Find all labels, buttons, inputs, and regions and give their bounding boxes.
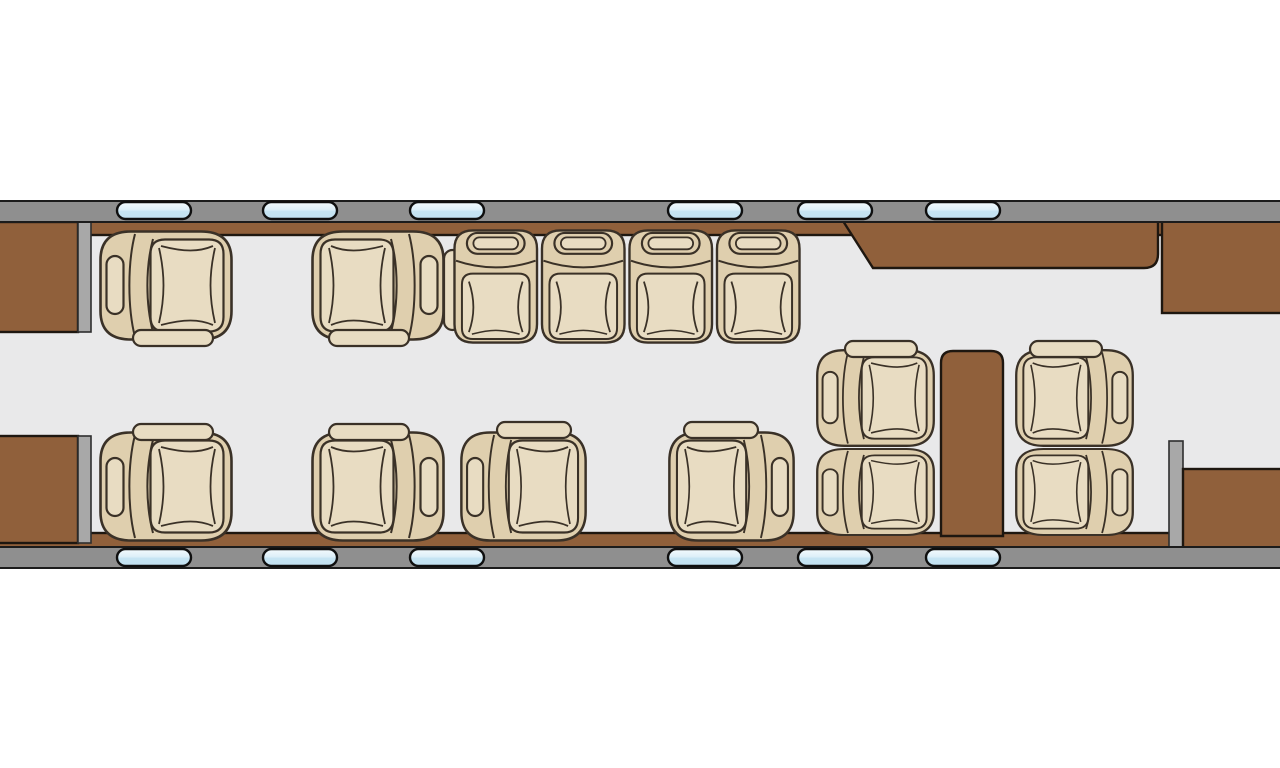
window-row-top-window-5 <box>798 202 872 219</box>
club-seat-3-armrest <box>133 424 213 440</box>
club-seat-4-armrest <box>329 424 409 440</box>
club-seat-3 <box>101 433 232 541</box>
club-seat-2-armrest <box>329 330 409 346</box>
club-seat-5 <box>461 433 585 541</box>
window-row-top-window-6 <box>926 202 1000 219</box>
window-row-bottom-window-1 <box>117 549 191 566</box>
divan-seat-1 <box>454 230 537 342</box>
divan-seat-3 <box>629 230 712 342</box>
window-row-top-window-4 <box>668 202 742 219</box>
entry-partition-aft <box>78 436 91 543</box>
floorplan-image <box>0 0 1280 768</box>
club-seat-1 <box>101 232 232 340</box>
window-row-bottom-window-6 <box>926 549 1000 566</box>
aft-cabinet-top <box>1162 221 1280 313</box>
window-row-top-window-2 <box>263 202 337 219</box>
conference-table <box>941 351 1003 536</box>
club-seat-5-armrest <box>497 422 571 438</box>
window-row-bottom-window-4 <box>668 549 742 566</box>
cabin-floorplan <box>0 0 1280 768</box>
aft-partition <box>1169 441 1183 548</box>
club-seat-7-armrest <box>845 341 917 357</box>
club-seat-9 <box>1016 350 1133 446</box>
club-seat-6 <box>669 433 793 541</box>
credenza <box>843 221 1158 268</box>
club-seat-6-armrest <box>684 422 758 438</box>
club-seat-4 <box>313 433 444 541</box>
club-seat-9-armrest <box>1030 341 1102 357</box>
window-row-bottom-window-2 <box>263 549 337 566</box>
club-seat-2 <box>313 232 444 340</box>
entry-partition-forward <box>78 222 91 332</box>
window-row-bottom-window-5 <box>798 549 872 566</box>
club-seat-7 <box>817 350 934 446</box>
aft-cabinet-bottom <box>1183 469 1280 548</box>
club-seat-10 <box>1016 449 1133 535</box>
window-row-top-window-3 <box>410 202 484 219</box>
club-seat-8 <box>817 449 934 535</box>
club-seat-1-armrest <box>133 330 213 346</box>
entry-closet-forward <box>0 222 78 332</box>
window-row-bottom-window-3 <box>410 549 484 566</box>
divan-seat-2 <box>542 230 625 342</box>
window-row-top-window-1 <box>117 202 191 219</box>
divan-seat-4 <box>717 230 800 342</box>
entry-closet-aft <box>0 436 78 543</box>
